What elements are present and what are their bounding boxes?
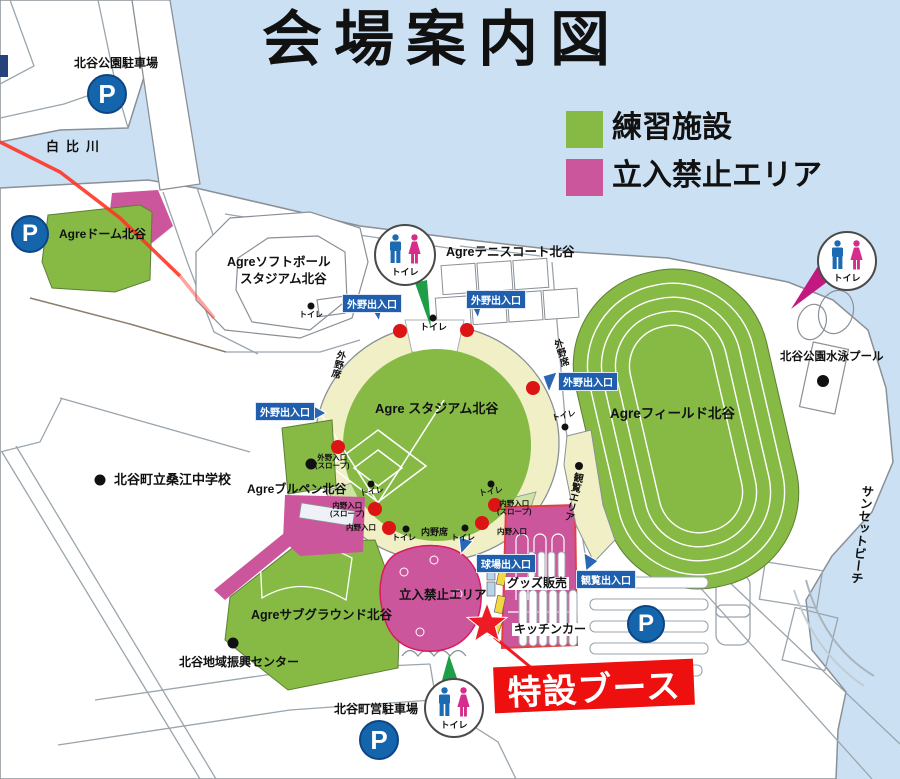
label-infield-right: 内野入口 — [497, 528, 527, 536]
toilet-circle-label: トイレ — [833, 271, 860, 284]
infield-slope-left-line2: (スロープ) — [330, 510, 365, 518]
legend-label-practice: 練習施設 — [612, 112, 732, 144]
special-booth-banner: 特設ブース — [493, 659, 695, 714]
legend-swatch-no-entry — [566, 159, 603, 196]
label-infield-slope-right: 内野入口 (スロープ) — [497, 500, 532, 516]
label-toilet-bottom-left: トイレ — [392, 534, 416, 542]
woman-icon — [848, 240, 865, 270]
label-pool: 北谷公園水泳プール — [780, 351, 884, 363]
gate-stadium: 球場出入口 — [476, 554, 536, 573]
parking-icon-town: P — [359, 720, 399, 760]
parking-icon-west: P — [11, 215, 49, 253]
label-field: Agreフィールド北谷 — [610, 407, 735, 421]
label-park-parking: 北谷公園駐車場 — [74, 57, 158, 70]
gate-outfield-field: 外野出入口 — [558, 372, 618, 391]
label-no-entry-blob: 立入禁止エリア — [399, 589, 487, 602]
infield-slope-right-line2: (スロープ) — [497, 508, 532, 516]
restroom-figures — [388, 234, 423, 264]
label-town-parking: 北谷町営駐車場 — [334, 703, 418, 716]
label-toilet-ring-top: トイレ — [420, 323, 447, 332]
label-infield-slope-left: 内野入口 (スロープ) — [330, 502, 365, 518]
label-school: 北谷町立桑江中学校 — [114, 473, 231, 487]
man-icon — [830, 240, 845, 270]
parking-letter: P — [370, 725, 387, 756]
toilet-icon-bottom: トイレ — [424, 678, 484, 738]
man-icon — [437, 687, 452, 717]
label-outfield-slope: 外野入口 (スロープ) — [315, 454, 350, 470]
toilet-circle-label: トイレ — [440, 718, 467, 731]
woman-icon — [455, 687, 472, 717]
restroom-figures — [830, 240, 865, 270]
label-subground: Agreサブグラウンド北谷 — [251, 609, 392, 622]
edge-marker — [0, 55, 8, 77]
label-community-center: 北谷地域振興センター — [179, 656, 299, 669]
label-softball-line1: Agreソフトボール — [227, 256, 330, 269]
parking-letter: P — [638, 610, 654, 638]
label-kitchen-car: キッチンカー — [512, 623, 588, 636]
page-title: 会場案内図 — [262, 8, 622, 71]
label-stadium: Agre スタジアム北谷 — [375, 402, 498, 416]
parking-icon-park: P — [87, 74, 127, 114]
gate-outfield-west: 外野出入口 — [255, 402, 315, 421]
label-dome: Agreドーム北谷 — [59, 228, 146, 241]
toilet-circle-label: トイレ — [391, 265, 418, 278]
outfield-slope-line2: (スロープ) — [315, 462, 350, 470]
parking-letter: P — [22, 220, 38, 248]
legend-label-no-entry: 立入禁止エリア — [612, 160, 822, 192]
restroom-figures — [437, 687, 472, 717]
man-icon — [388, 234, 403, 264]
toilet-icon-right: トイレ — [817, 231, 877, 291]
label-bullpen: Agreブルペン北谷 — [247, 483, 346, 496]
label-infield-left: 内野入口 — [346, 524, 376, 532]
gate-outfield-top-right: 外野出入口 — [466, 290, 526, 309]
bridge — [132, 0, 200, 190]
legend-swatch-practice — [566, 111, 603, 148]
gate-outfield-top-left: 外野出入口 — [342, 294, 402, 313]
map-base — [0, 0, 900, 779]
label-infield-seats: 内野席 — [421, 528, 448, 537]
toilet-icon-top: トイレ — [374, 224, 436, 286]
agre-dome-shape — [42, 205, 152, 292]
label-toilet-softball: トイレ — [299, 311, 323, 319]
label-tennis: Agreテニスコート北谷 — [446, 246, 574, 259]
label-goods: グッズ販売 — [505, 577, 569, 590]
parking-letter: P — [98, 79, 115, 110]
gate-viewing: 観覧出入口 — [576, 570, 636, 589]
special-booth-label: 特設ブース — [506, 658, 681, 715]
label-river: 白比川 — [46, 140, 106, 154]
venue-map: 会場案内図 練習施設 立入禁止エリア 北谷公園駐車場 白比川 Agreドーム北谷… — [0, 0, 900, 779]
woman-icon — [406, 234, 423, 264]
label-softball-line2: スタジアム北谷 — [240, 273, 327, 286]
label-toilet-bottom-right: トイレ — [451, 534, 475, 542]
parking-icon-east: P — [627, 605, 665, 643]
